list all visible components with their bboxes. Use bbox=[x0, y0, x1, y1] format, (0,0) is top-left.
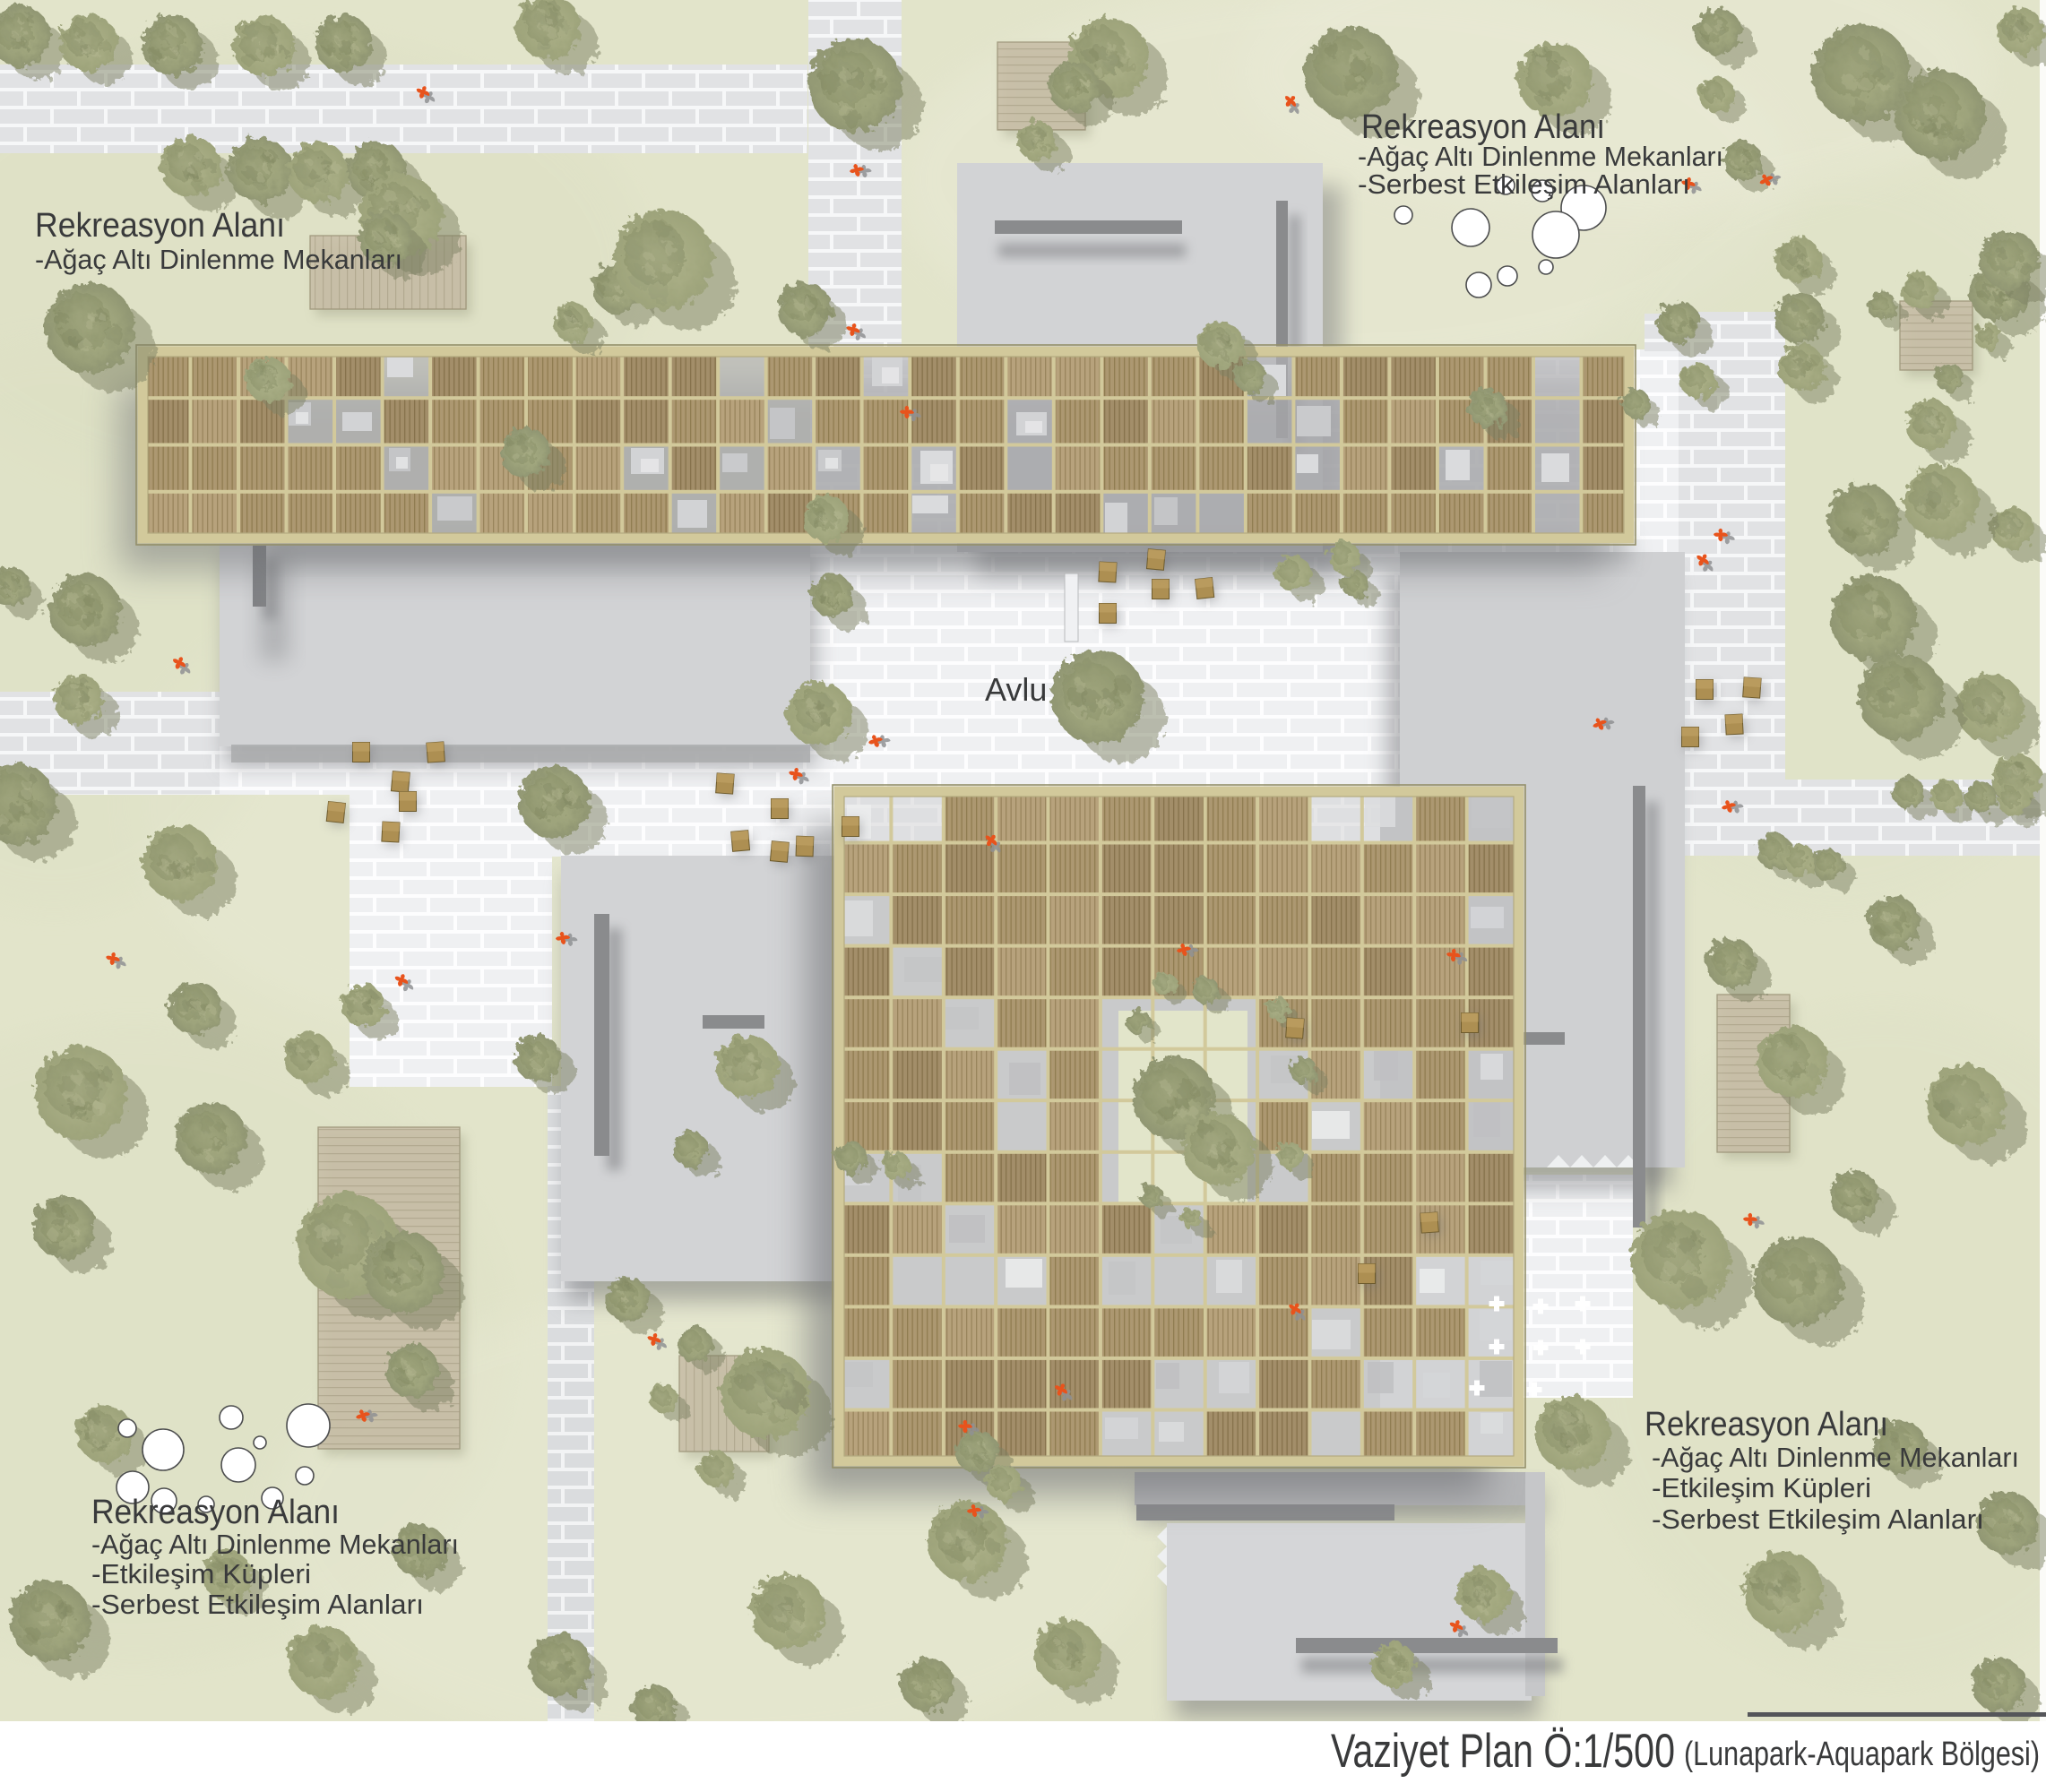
svg-text:Avlu: Avlu bbox=[985, 671, 1047, 708]
svg-text:-Serbest Etkileşim Alanları: -Serbest Etkileşim Alanları bbox=[1652, 1503, 1984, 1535]
svg-text:-Ağaç Altı Dinlenme Mekanları: -Ağaç Altı Dinlenme Mekanları bbox=[35, 244, 402, 275]
svg-text:Vaziyet Plan Ö:1/500: Vaziyet Plan Ö:1/500 bbox=[1331, 1725, 1675, 1778]
svg-text:Rekreasyon Alanı: Rekreasyon Alanı bbox=[91, 1494, 340, 1531]
svg-text:-Ağaç Altı Dinlenme Mekanları: -Ağaç Altı Dinlenme Mekanları bbox=[91, 1529, 459, 1560]
svg-text:-Serbest Etkileşim Alanları: -Serbest Etkileşim Alanları bbox=[1358, 168, 1690, 200]
svg-text:-Ağaç Altı Dinlenme Mekanları: -Ağaç Altı Dinlenme Mekanları bbox=[1652, 1442, 2019, 1473]
svg-text:-Etkileşim Küpleri: -Etkileşim Küpleri bbox=[91, 1558, 311, 1590]
svg-text:-Etkileşim Küpleri: -Etkileşim Küpleri bbox=[1652, 1472, 1871, 1503]
svg-text:Rekreasyon Alanı: Rekreasyon Alanı bbox=[35, 207, 285, 245]
svg-text:-Ağaç Altı Dinlenme Mekanları: -Ağaç Altı Dinlenme Mekanları bbox=[1358, 141, 1723, 172]
svg-text:-Serbest Etkileşim Alanları: -Serbest Etkileşim Alanları bbox=[91, 1589, 424, 1620]
svg-text:(Lunapark-Aquapark Bölgesi): (Lunapark-Aquapark Bölgesi) bbox=[1684, 1736, 2040, 1773]
svg-text:Rekreasyon Alanı: Rekreasyon Alanı bbox=[1645, 1406, 1888, 1443]
